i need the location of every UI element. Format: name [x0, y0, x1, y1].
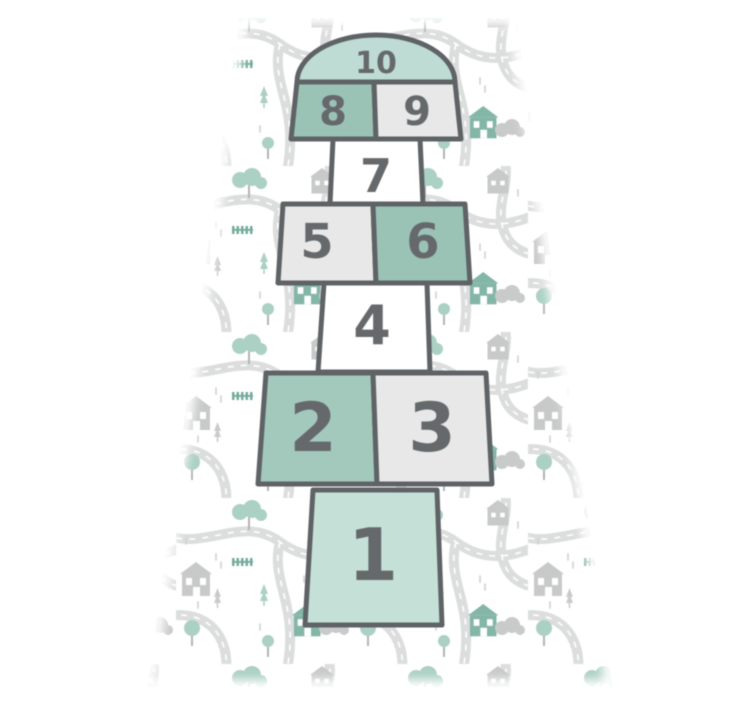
- cell-9-number: 9: [403, 89, 431, 135]
- cell-3-number: 3: [408, 389, 455, 468]
- hopscotch-mat-scene: 10 8 9 7 5 6 4 2 3 1: [0, 0, 752, 703]
- cell-10-number: 10: [355, 46, 397, 81]
- cell-8-number: 8: [319, 89, 347, 135]
- cell-7-number: 7: [360, 149, 392, 203]
- cell-5-number: 5: [300, 214, 333, 270]
- cell-2-number: 2: [289, 389, 336, 468]
- cell-1-number: 1: [348, 513, 398, 597]
- product-image: 10 8 9 7 5 6 4 2 3 1: [0, 0, 752, 703]
- cell-4-number: 4: [353, 294, 391, 357]
- cell-6-number: 6: [406, 214, 439, 270]
